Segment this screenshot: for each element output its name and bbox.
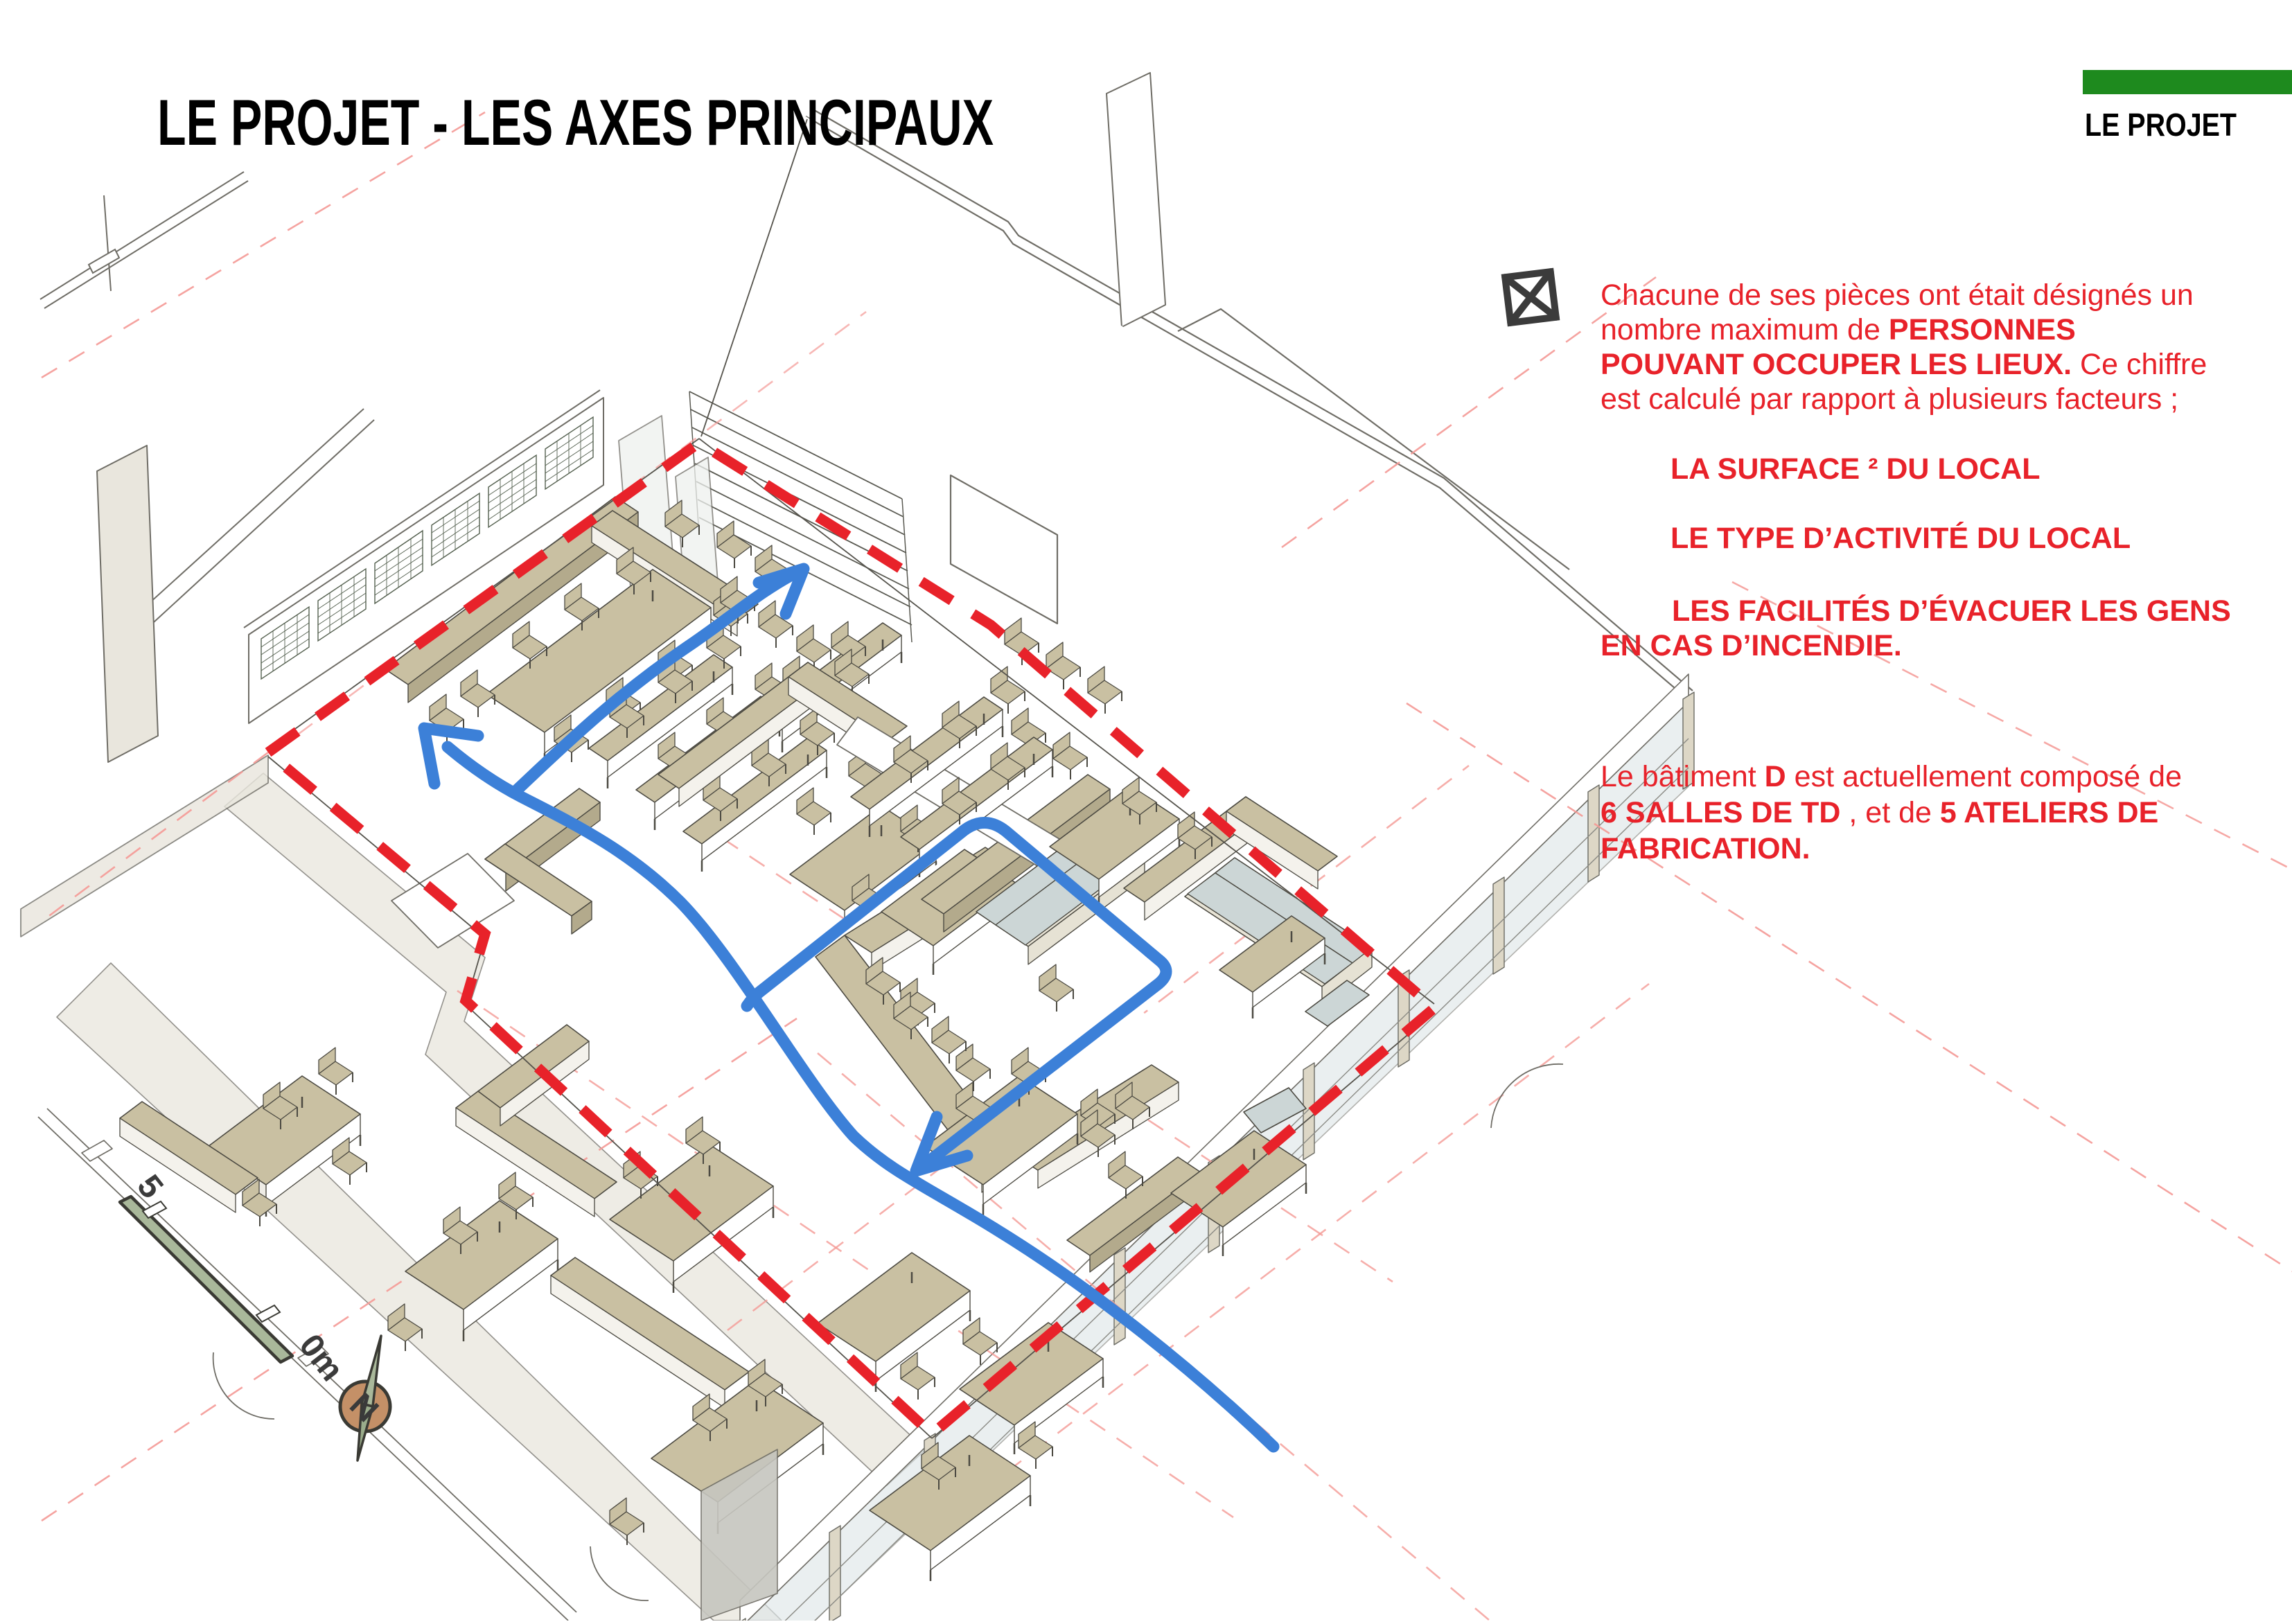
svg-text:est calculé par rapport à plus: est calculé par rapport à plusieurs fact… xyxy=(1601,382,2178,416)
svg-text:LE PROJET - LES AXES PRINCIPAU: LE PROJET - LES AXES PRINCIPAUX xyxy=(157,86,994,159)
svg-text:POUVANT OCCUPER LES LIEUX. Ce: POUVANT OCCUPER LES LIEUX. Ce chiffre xyxy=(1601,348,2207,381)
svg-text:LES FACILITÉS D’ÉVACUER LES GE: LES FACILITÉS D’ÉVACUER LES GENS xyxy=(1672,594,2231,628)
svg-text:6 SALLES DE TD , et de 5 ATELI: 6 SALLES DE TD , et de 5 ATELIERS DE xyxy=(1601,796,2158,829)
svg-text:nombre maximum de PERSONNES: nombre maximum de PERSONNES xyxy=(1601,313,2076,346)
svg-text:FABRICATION.: FABRICATION. xyxy=(1601,832,1810,865)
svg-text:Le bâtiment D est actuellement: Le bâtiment D est actuellement composé d… xyxy=(1601,760,2182,793)
svg-text:LA SURFACE ² DU LOCAL: LA SURFACE ² DU LOCAL xyxy=(1670,452,2040,486)
svg-text:Chacune de ses pièces ont étai: Chacune de ses pièces ont était désignés… xyxy=(1601,279,2194,312)
svg-text:LE PROJET: LE PROJET xyxy=(2085,107,2237,143)
svg-text:EN CAS D’INCENDIE.: EN CAS D’INCENDIE. xyxy=(1601,629,1902,662)
svg-text:LE TYPE D’ACTIVITÉ DU LOCAL: LE TYPE D’ACTIVITÉ DU LOCAL xyxy=(1670,522,2131,555)
